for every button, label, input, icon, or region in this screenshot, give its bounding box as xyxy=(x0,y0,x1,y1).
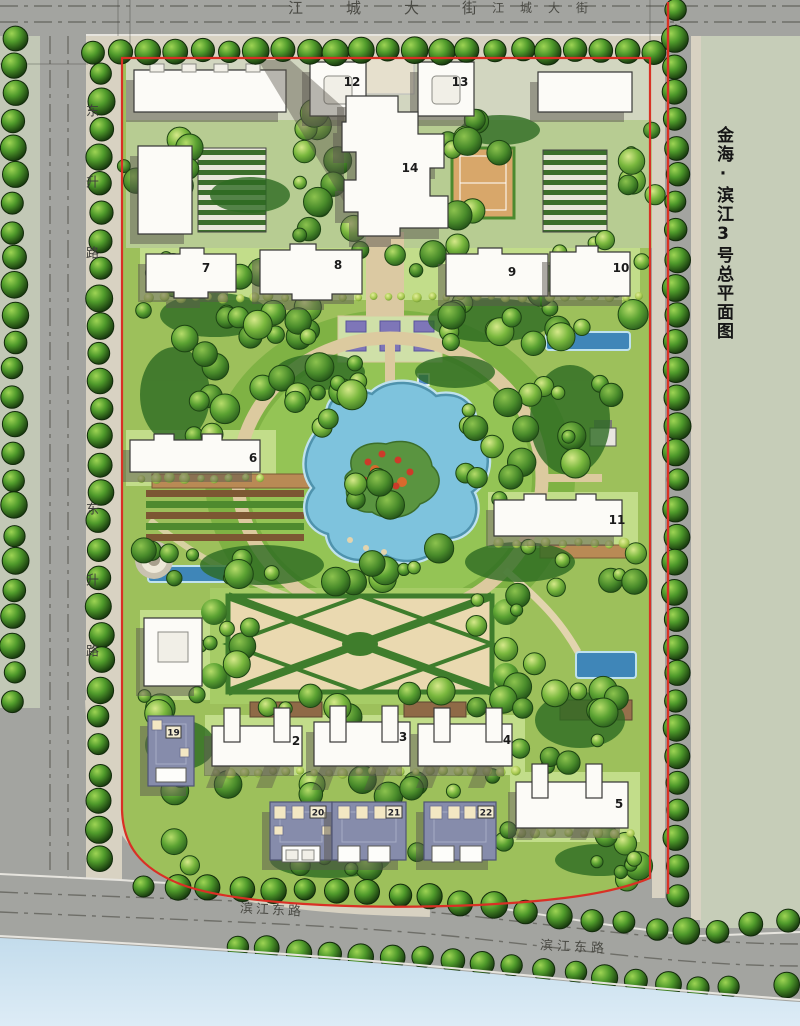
tree-icon xyxy=(4,526,25,547)
villa-22: 22 xyxy=(416,802,496,870)
tree-icon xyxy=(542,680,569,707)
tree-icon xyxy=(1,110,24,133)
building-number: 9 xyxy=(508,265,516,279)
building-9: 9 xyxy=(438,248,548,306)
building-number: 19 xyxy=(167,729,180,739)
tree-icon xyxy=(385,245,406,266)
tree-icon xyxy=(673,918,700,945)
tree-icon xyxy=(161,829,187,855)
tree-icon xyxy=(662,549,688,575)
building-number: 22 xyxy=(480,809,493,819)
tree-icon xyxy=(499,465,523,489)
tree-icon xyxy=(305,353,334,382)
pool-east xyxy=(576,652,636,678)
tree-icon xyxy=(467,468,487,488)
tree-icon xyxy=(494,638,518,662)
tree-icon xyxy=(634,254,650,270)
tree-icon xyxy=(401,37,428,64)
tree-icon xyxy=(581,910,603,932)
garage-building-east xyxy=(543,150,607,232)
tree-icon xyxy=(777,909,800,932)
tree-icon xyxy=(299,684,322,707)
tree-icon xyxy=(662,80,687,105)
tree-icon xyxy=(429,292,437,300)
tree-icon xyxy=(663,55,687,79)
tree-icon xyxy=(487,140,512,165)
tree-icon xyxy=(1,272,28,299)
tree-icon xyxy=(613,911,635,933)
tree-icon xyxy=(591,856,603,868)
building-tower-west xyxy=(136,618,202,696)
site-plan: 12 13 14 7 8 9 10 6 11 2 xyxy=(0,0,800,1026)
tree-icon xyxy=(193,342,218,367)
tree-icon xyxy=(2,547,29,574)
building-10: 10 xyxy=(542,246,630,306)
building-number: 12 xyxy=(344,75,361,89)
building-slab-northeast xyxy=(530,72,632,122)
tree-icon xyxy=(667,469,688,490)
tree-icon xyxy=(666,771,689,794)
building-number: 20 xyxy=(312,809,325,819)
tree-icon xyxy=(561,448,591,478)
tree-icon xyxy=(2,691,24,713)
tree-icon xyxy=(448,891,473,916)
tree-icon xyxy=(547,323,575,351)
tree-icon xyxy=(510,739,529,758)
tree-icon xyxy=(90,63,111,84)
tree-icon xyxy=(186,549,198,561)
tree-icon xyxy=(1,386,23,408)
tree-icon xyxy=(425,534,454,563)
tree-icon xyxy=(2,442,24,464)
tree-icon xyxy=(667,855,689,877)
tree-icon xyxy=(511,766,521,776)
tree-icon xyxy=(467,698,486,717)
tree-icon xyxy=(294,176,307,189)
tree-icon xyxy=(662,439,689,466)
building-13: 13 xyxy=(410,62,474,126)
tree-icon xyxy=(355,294,362,301)
tree-icon xyxy=(88,88,115,115)
building-west-mid-low xyxy=(130,146,192,244)
tree-icon xyxy=(167,571,182,586)
tree-icon xyxy=(87,423,112,448)
tree-icon xyxy=(347,356,362,371)
tree-icon xyxy=(108,40,132,64)
villa-19: 19 xyxy=(140,716,194,796)
tree-icon xyxy=(502,308,521,327)
tree-icon xyxy=(647,919,668,940)
tree-icon xyxy=(645,185,665,205)
tree-icon xyxy=(523,653,545,675)
site-plan-drawing: 12 13 14 7 8 9 10 6 11 2 xyxy=(0,0,800,1026)
tree-icon xyxy=(298,39,323,64)
tree-icon xyxy=(300,329,316,345)
tree-icon xyxy=(408,561,421,574)
building-number: 13 xyxy=(452,75,469,89)
tree-icon xyxy=(774,972,800,998)
building-number: 4 xyxy=(503,733,511,747)
building-8: 8 xyxy=(252,244,362,310)
tree-icon xyxy=(466,616,487,637)
tree-icon xyxy=(220,621,235,636)
tree-icon xyxy=(89,623,114,648)
tree-icon xyxy=(370,292,378,300)
tree-icon xyxy=(618,300,648,330)
tree-icon xyxy=(256,474,264,482)
tree-icon xyxy=(90,117,114,141)
building-number: 7 xyxy=(202,261,210,275)
tree-icon xyxy=(591,734,604,747)
tree-icon xyxy=(87,566,111,590)
tree-icon xyxy=(662,275,689,302)
tree-icon xyxy=(494,388,522,416)
tree-icon xyxy=(409,264,422,277)
tree-icon xyxy=(739,912,763,936)
tree-icon xyxy=(322,39,348,65)
villa-21: 21 xyxy=(324,802,406,870)
tree-icon xyxy=(547,904,572,929)
building-slab-northwest xyxy=(126,64,286,122)
tree-icon xyxy=(88,342,110,364)
tree-icon xyxy=(87,677,113,703)
tree-icon xyxy=(224,560,253,589)
tree-icon xyxy=(89,230,112,253)
tree-icon xyxy=(618,148,644,174)
tree-icon xyxy=(1,357,22,378)
tree-icon xyxy=(4,662,25,683)
tree-icon xyxy=(3,579,26,602)
tree-icon xyxy=(91,398,113,420)
tree-icon xyxy=(136,303,152,319)
building-number: 2 xyxy=(292,734,300,748)
tree-icon xyxy=(635,292,643,300)
tree-icon xyxy=(417,884,442,909)
tree-icon xyxy=(160,544,179,563)
tree-icon xyxy=(557,751,580,774)
tree-icon xyxy=(385,293,393,301)
tree-icon xyxy=(427,677,455,705)
tree-icon xyxy=(513,698,533,718)
tree-icon xyxy=(86,144,112,170)
tree-icon xyxy=(359,551,385,577)
tree-icon xyxy=(442,334,459,351)
tree-icon xyxy=(397,292,405,300)
tree-icon xyxy=(0,135,26,161)
tree-icon xyxy=(87,539,110,562)
tree-icon xyxy=(131,538,156,563)
tree-icon xyxy=(667,885,689,907)
tree-icon xyxy=(521,331,545,355)
tree-icon xyxy=(296,767,304,775)
tree-icon xyxy=(1,604,25,628)
tree-icon xyxy=(666,163,689,186)
tree-icon xyxy=(463,416,488,441)
building-number: 14 xyxy=(402,161,419,175)
tree-icon xyxy=(337,380,367,410)
tree-icon xyxy=(462,404,475,417)
tree-icon xyxy=(2,302,28,328)
tree-icon xyxy=(446,784,460,798)
tree-icon xyxy=(318,409,338,429)
tree-icon xyxy=(615,39,640,64)
tree-icon xyxy=(551,386,564,399)
building-number: 21 xyxy=(388,809,401,819)
tree-icon xyxy=(662,26,689,53)
tree-icon xyxy=(82,41,105,64)
tree-icon xyxy=(86,788,111,813)
tree-icon xyxy=(429,39,455,65)
tree-icon xyxy=(562,430,575,443)
tree-icon xyxy=(626,829,634,837)
tree-icon xyxy=(163,39,188,64)
tree-icon xyxy=(355,880,380,905)
tree-icon xyxy=(285,391,306,412)
tree-icon xyxy=(133,876,154,897)
east-sidewalk-outer xyxy=(691,36,701,920)
tree-icon xyxy=(3,470,25,492)
building-number: 10 xyxy=(613,261,630,275)
tree-icon xyxy=(1,492,27,518)
building-number: 5 xyxy=(615,797,623,811)
tree-icon xyxy=(420,241,446,267)
tree-icon xyxy=(88,480,114,506)
tree-icon xyxy=(195,875,220,900)
tree-icon xyxy=(1,222,23,244)
tree-icon xyxy=(180,856,199,875)
tree-icon xyxy=(481,435,504,458)
tree-icon xyxy=(663,497,688,522)
tree-icon xyxy=(4,331,27,354)
villa-20: 20 xyxy=(262,802,332,870)
tree-icon xyxy=(236,294,244,302)
tree-icon xyxy=(90,257,112,279)
plan-title: 金海·滨江3号总平面图 xyxy=(714,126,736,341)
tree-icon xyxy=(663,825,688,850)
tree-icon xyxy=(219,41,240,62)
tree-icon xyxy=(3,161,29,187)
tree-icon xyxy=(322,567,351,596)
tree-icon xyxy=(241,618,260,637)
tree-icon xyxy=(223,651,250,678)
tree-icon xyxy=(243,310,272,339)
tree-icon xyxy=(534,38,561,65)
tree-icon xyxy=(135,39,161,65)
tree-icon xyxy=(304,187,333,216)
building-number: 6 xyxy=(249,451,257,465)
tree-icon xyxy=(85,593,111,619)
tree-icon xyxy=(203,636,217,650)
tree-icon xyxy=(242,38,269,65)
tree-icon xyxy=(570,683,587,700)
tree-icon xyxy=(513,416,539,442)
tree-icon xyxy=(589,698,618,727)
tree-icon xyxy=(600,383,623,406)
tree-icon xyxy=(1,192,23,214)
tree-icon xyxy=(510,604,522,616)
building-number: 8 xyxy=(334,258,342,272)
tree-icon xyxy=(619,538,630,549)
tree-icon xyxy=(622,569,647,594)
tree-icon xyxy=(88,453,112,477)
tree-icon xyxy=(471,594,484,607)
tree-icon xyxy=(89,647,115,673)
tree-icon xyxy=(189,391,209,411)
tree-icon xyxy=(574,319,590,335)
tree-icon xyxy=(293,228,307,242)
tree-icon xyxy=(325,879,349,903)
tree-icon xyxy=(453,127,481,155)
tree-icon xyxy=(662,580,688,606)
tree-icon xyxy=(367,470,393,496)
tree-icon xyxy=(86,816,113,843)
tree-icon xyxy=(663,108,686,131)
tree-icon xyxy=(618,175,638,195)
tree-icon xyxy=(86,285,113,312)
tree-icon xyxy=(87,313,114,340)
tree-icon xyxy=(2,412,27,437)
tree-icon xyxy=(644,122,660,138)
tree-icon xyxy=(210,394,240,424)
tree-icon xyxy=(90,201,113,224)
tree-icon xyxy=(547,578,565,596)
tree-icon xyxy=(311,385,326,400)
tree-icon xyxy=(88,172,111,195)
tree-icon xyxy=(0,633,25,658)
tree-icon xyxy=(86,508,110,532)
tree-icon xyxy=(627,852,642,867)
tree-icon xyxy=(389,884,411,906)
building-6: 6 xyxy=(122,434,260,482)
tree-icon xyxy=(87,706,108,727)
tree-icon xyxy=(706,921,729,944)
tree-icon xyxy=(667,799,689,821)
building-number: 11 xyxy=(609,513,626,527)
tree-icon xyxy=(345,473,367,495)
tree-icon xyxy=(264,566,279,581)
tree-icon xyxy=(87,368,113,394)
east-sidewalk-inner xyxy=(652,36,665,898)
building-number: 3 xyxy=(399,730,407,744)
tree-icon xyxy=(3,80,28,105)
tree-icon xyxy=(348,37,374,63)
tree-icon xyxy=(514,900,538,924)
tree-icon xyxy=(3,26,28,51)
tree-icon xyxy=(555,553,570,568)
tree-icon xyxy=(3,245,27,269)
building-11: 11 xyxy=(486,494,625,546)
tree-icon xyxy=(398,682,420,704)
tree-icon xyxy=(89,765,111,787)
tree-icon xyxy=(2,53,27,78)
tree-icon xyxy=(294,879,315,900)
tree-icon xyxy=(88,734,109,755)
building-7: 7 xyxy=(138,248,236,308)
tree-icon xyxy=(412,293,422,303)
tree-icon xyxy=(87,846,113,872)
